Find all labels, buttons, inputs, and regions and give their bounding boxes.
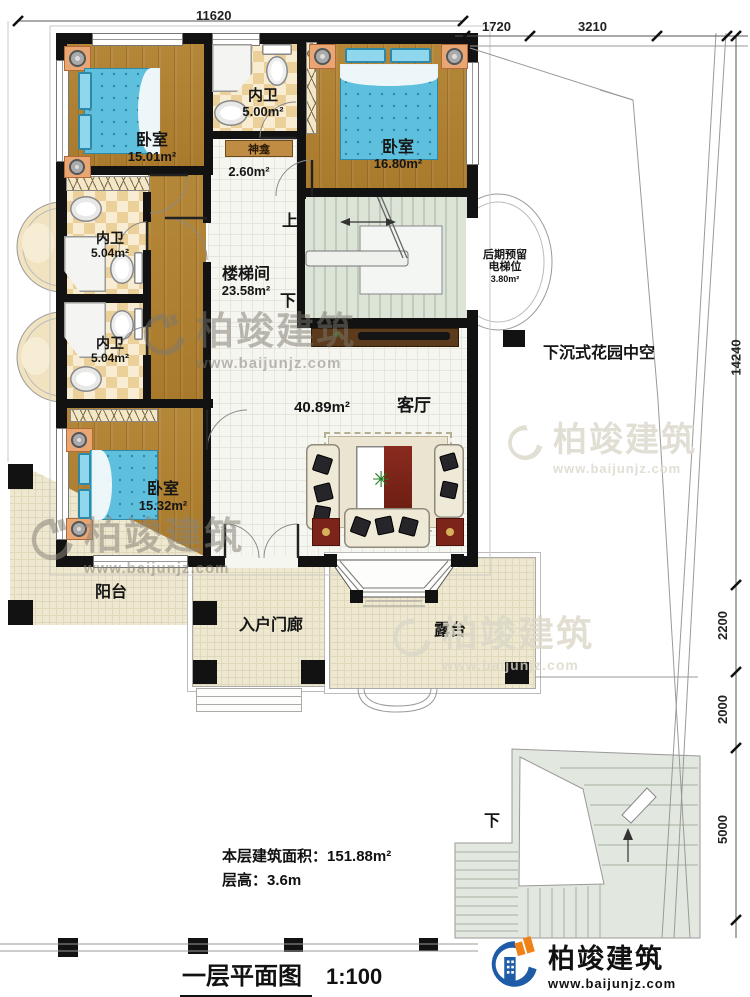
terrace-label: 露台 [434, 622, 466, 640]
sheet-title-block: 一层平面图 1:100 [180, 956, 382, 997]
floor-area-stat: 本层建筑面积：151.88m² [222, 845, 391, 866]
bedroom1-label: 卧室15.01m² [128, 132, 176, 164]
brand-website: www.baijunjz.com [548, 976, 676, 991]
bath-mid-label: 内卫5.04m² [91, 231, 129, 260]
floor-height-stat: 层高：3.6m [222, 869, 301, 890]
bedroom3-label: 卧室15.32m² [139, 481, 187, 513]
brand-logo-block: 柏竣建筑 www.baijunjz.com [486, 936, 676, 992]
shrine-area-label: 2.60m² [228, 165, 269, 180]
dim-top: 11620 [196, 8, 231, 23]
porch-label: 入户门廊 [239, 617, 303, 635]
bath-top-label: 内卫5.00m² [242, 88, 283, 119]
ext-stair-down-label: 下 [484, 813, 500, 831]
dim-top-right-a: 1720 [482, 19, 511, 34]
brand-logo-icon [486, 936, 540, 992]
elevator-label: 后期预留电梯位 3.80m² [483, 249, 527, 284]
dim-right-b: 2000 [715, 695, 730, 724]
stair-down-label: 下 [280, 293, 296, 311]
dim-top-right-b: 3210 [578, 19, 607, 34]
dim-right-a: 2200 [715, 611, 730, 640]
dim-right-total: 14240 [729, 339, 744, 375]
bedroom2-label: 卧室16.80m² [374, 139, 422, 171]
living-area-label: 40.89m² [294, 400, 350, 417]
sheet-title: 一层平面图 [180, 956, 312, 997]
living-label: 客厅 [397, 396, 431, 415]
balcony-label: 阳台 [95, 584, 127, 602]
stairwell-label: 楼梯间23.58m² [222, 266, 270, 298]
stair-up-label: 上 [282, 213, 298, 231]
dim-right-c: 5000 [715, 815, 730, 844]
garden-label: 下沉式花园中空 [543, 345, 655, 363]
sheet-scale: 1:100 [326, 964, 382, 990]
bath-low-label: 内卫5.04m² [91, 336, 129, 365]
floorplan-sheet: ✳ ✳ 神龛 [0, 0, 750, 997]
brand-name: 柏竣建筑 [548, 937, 676, 976]
